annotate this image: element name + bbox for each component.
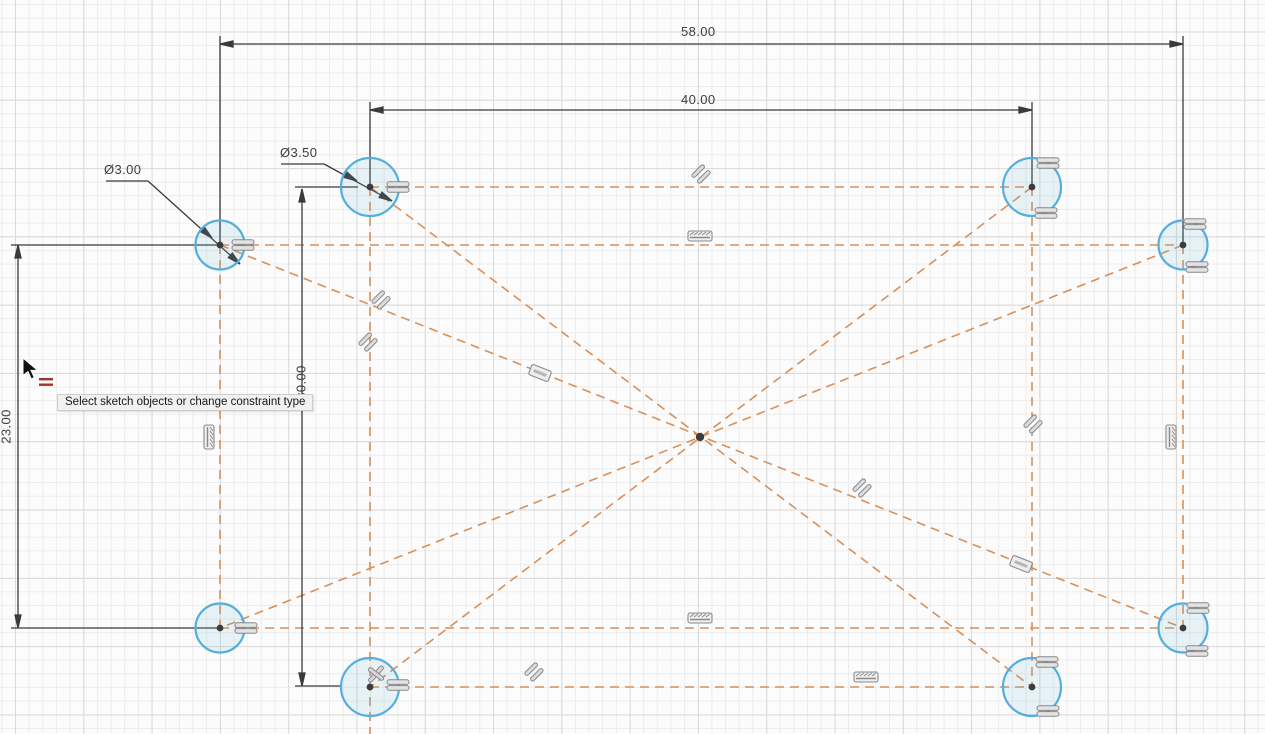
online-constraint-icon[interactable] [1009,555,1033,573]
parallel-constraint-icon[interactable] [358,332,378,352]
sketch-center-point[interactable] [696,433,704,441]
dimension-label-dia-3-50[interactable]: Ø3.50 [280,145,317,160]
sketch-drawing [0,0,1265,734]
dimension-23[interactable] [11,245,219,628]
parallel-constraint-icon[interactable] [691,164,711,184]
center-point[interactable] [367,684,374,691]
center-point[interactable] [217,625,224,632]
parallel-constraint-icon[interactable] [852,478,872,498]
collinear-constraint-icon[interactable] [204,425,214,449]
sketch-canvas[interactable]: 58.00 40.00 Ø3.00 Ø3.50 23.00 30.00 Sele… [0,0,1265,734]
dimension-label-dia-3-00[interactable]: Ø3.00 [104,162,141,177]
online-constraint-icon[interactable] [528,364,552,382]
collinear-constraint-icon[interactable] [688,613,712,623]
dimension-label-40[interactable]: 40.00 [681,92,716,107]
parallel-constraint-icon[interactable] [1023,414,1043,434]
dimension-40[interactable] [370,102,1032,187]
center-point[interactable] [1180,625,1187,632]
collinear-constraint-icon[interactable] [1166,425,1176,449]
center-point[interactable] [217,242,224,249]
collinear-constraint-icon[interactable] [854,672,878,682]
center-point[interactable] [367,184,374,191]
constraint-icons[interactable] [204,158,1209,716]
dimension-30[interactable] [295,187,358,686]
collinear-constraint-icon[interactable] [688,231,712,241]
parallel-constraint-icon[interactable] [524,662,544,682]
center-point[interactable] [1029,684,1036,691]
center-point[interactable] [1029,184,1036,191]
dimension-lines[interactable] [11,36,1183,686]
dimension-label-58[interactable]: 58.00 [681,24,716,39]
dimension-label-23[interactable]: 23.00 [0,406,14,448]
center-point[interactable] [1180,242,1187,249]
construction-lines[interactable] [220,187,1183,734]
tooltip: Select sketch objects or change constrai… [57,394,313,411]
